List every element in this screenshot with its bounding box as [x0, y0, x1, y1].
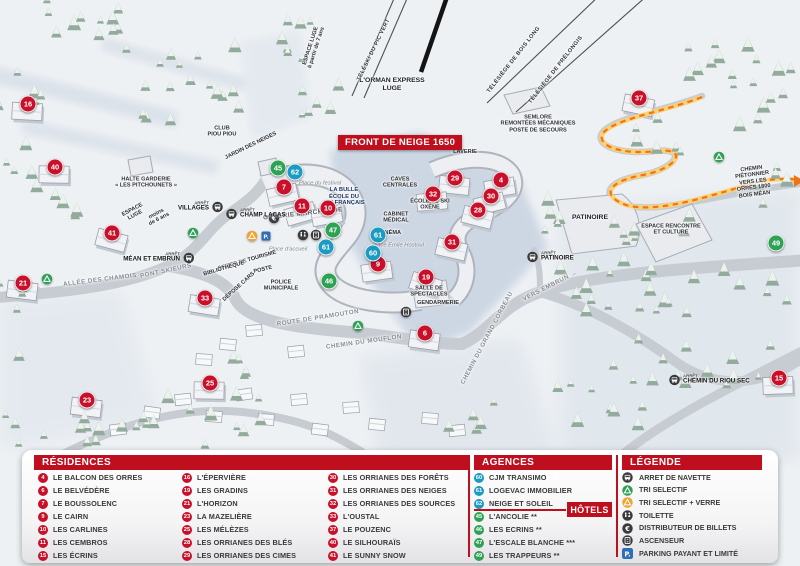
map-label: CHEMIN PIÉTONNIER VERS LES ORRES 1800 BO…: [728, 163, 779, 201]
map-marker-45: 45: [270, 160, 287, 177]
list-item: 33L'OUSTAL: [328, 510, 455, 523]
item-label: LES ORRIANES DES SOURCES: [343, 499, 455, 508]
item-label: LE SILHOURAÏS: [343, 538, 401, 547]
svg-text:P.: P.: [263, 234, 268, 240]
number-badge: 49: [474, 551, 484, 561]
number-badge: 19: [182, 486, 192, 496]
item-label: L'ESCALE BLANCHE ***: [489, 538, 575, 547]
item-label: LES MÉLÈZES: [197, 525, 249, 534]
bus-icon: [527, 251, 538, 262]
resort-map-page: ESPACE LUGE à partir de 7 ansTÉLÉSKI DU …: [0, 0, 800, 566]
legende-list: ARRET DE NAVETTETRI SELECTIFTRI SELECTIF…: [622, 471, 738, 560]
map-icon-toilet: [298, 230, 309, 241]
map-label: TÉLÉSIÈGE DE BOIS LONG: [486, 26, 542, 95]
item-label: L'ÉPERVIÈRE: [197, 473, 246, 482]
map-marker-7: 7: [276, 179, 293, 196]
legende-label: ASCENSEUR: [639, 537, 684, 544]
number-badge: 33: [328, 512, 338, 522]
list-item: 11LES CEMBROS: [38, 536, 142, 549]
number-badge: 23: [182, 512, 192, 522]
number-badge: 9: [38, 512, 48, 522]
item-label: LES ÉCRINS: [53, 551, 98, 560]
legende-label: DISTRIBUTEUR DE BILLETS: [639, 524, 736, 531]
number-badge: 6: [38, 486, 48, 496]
legende-item: TRI SELECTIF + VERRE: [622, 496, 738, 509]
recycle-green-icon: [622, 485, 633, 496]
map-marker-28: 28: [470, 202, 487, 219]
list-item: 16L'ÉPERVIÈRE: [182, 471, 296, 484]
map-label: ESPACE LUGE à partir de 7 ans: [301, 25, 326, 70]
map-label: SALLE DE SPECTACLES: [410, 286, 447, 299]
list-item: 10LES CARLINES: [38, 523, 142, 536]
number-badge: 45: [474, 512, 484, 522]
number-badge: 41: [328, 551, 338, 561]
map-marker-25: 25: [202, 375, 219, 392]
item-label: LES ORRIANES DES NEIGES: [343, 486, 447, 495]
map-marker-61: 61: [318, 239, 335, 256]
item-label: LE CAIRN: [53, 512, 88, 521]
number-badge: 7: [38, 499, 48, 509]
map-marker-29: 29: [447, 170, 464, 187]
list-item: 46LES ECRINS **: [474, 523, 575, 536]
map-label: PONT SKIEURS: [140, 262, 193, 280]
map-marker-61: 61: [370, 227, 387, 244]
item-label: NEIGE ET SOLEIL: [489, 499, 553, 508]
item-label: LES ORRIANES DES BLÉS: [197, 538, 292, 547]
list-item: 31LES ORRIANES DES NEIGES: [328, 484, 455, 497]
bus-stop-champ-lacas: ARRÊTCHAMP LACAS: [226, 208, 286, 219]
bus-icon: [212, 201, 223, 212]
item-label: LES ORRIANES DES CIMES: [197, 551, 296, 560]
bus-stop-m-an-et-embrun: ARRÊTMÉAN ET EMBRUN: [123, 252, 194, 263]
map-marker-23: 23: [79, 392, 96, 409]
legende-header: LÉGENDE: [622, 455, 762, 470]
map-icon-elevator: [401, 307, 412, 318]
number-badge: 29: [182, 551, 192, 561]
number-badge: 21: [182, 499, 192, 509]
item-label: LE BELVÉDÈRE: [53, 486, 110, 495]
map-marker-10: 10: [320, 200, 337, 217]
item-label: L'HORIZON: [197, 499, 238, 508]
list-item: 7LE BOUSSOLENC: [38, 497, 142, 510]
map-label: HALTE GARDERIE « LES PITCHOUNETS »: [115, 177, 177, 190]
list-item: 61LOGEVAC IMMOBILIER: [474, 484, 572, 497]
legende-label: ARRET DE NAVETTE: [639, 474, 711, 481]
map-label: CHEMIN DU GRAND CORBEAU: [459, 290, 514, 385]
map-label: TÉLÉSIÈGE DE PRÉLONGIS: [528, 35, 585, 105]
number-badge: 10: [38, 525, 48, 535]
map-label: ALLÉE DES CHAMOIS: [63, 272, 137, 288]
agences-header: AGENCES IMMOBILIÈRES: [474, 455, 612, 470]
legende-item: ASCENSEUR: [622, 534, 738, 547]
map-label: PATINOIRE: [572, 214, 608, 222]
list-item: 60CJM TRANSIMO: [474, 471, 572, 484]
item-label: LOGEVAC IMMOBILIER: [489, 486, 572, 495]
map-marker-41: 41: [104, 225, 121, 242]
item-label: LES ECRINS **: [489, 525, 542, 534]
map-marker-30: 30: [483, 188, 500, 205]
map-marker-40: 40: [47, 159, 64, 176]
number-badge: 15: [38, 551, 48, 561]
list-item: 21L'HORIZON: [182, 497, 296, 510]
list-item: 40LE SILHOURAÏS: [328, 536, 455, 549]
number-badge: 37: [328, 525, 338, 535]
map-marker-11: 11: [294, 198, 311, 215]
map-label: TÉLÉSKI DU PIC VERT: [356, 18, 392, 82]
map-label: POSTE: [253, 265, 273, 276]
bus-stop-patinoire: ARRÊTPATINOIRE: [527, 251, 574, 262]
item-label: LES CARLINES: [53, 525, 108, 534]
map-label: POLICE MUNICIPALE: [264, 280, 298, 293]
euro-icon: €: [622, 523, 633, 534]
map-label: BIBLIOTHÈQUE: [203, 260, 245, 278]
item-label: LES ORRIANES DES FORÊTS: [343, 473, 449, 482]
map-icon-parking: P.: [262, 232, 271, 241]
item-label: L'OUSTAL: [343, 512, 379, 521]
residences-column-3: 30LES ORRIANES DES FORÊTS31LES ORRIANES …: [328, 471, 455, 562]
map-icon-recycle-orange: [247, 231, 258, 242]
legende-label: TRI SELECTIF + VERRE: [639, 499, 720, 506]
residences-column-1: 4LE BALCON DES ORRES6LE BELVÉDÈRE7LE BOU…: [38, 471, 142, 562]
number-badge: 62: [474, 499, 484, 509]
map-icon-recycle-green: [188, 228, 199, 239]
list-item: 15LES ÉCRINS: [38, 549, 142, 562]
number-badge: 61: [474, 486, 484, 496]
list-item: 23LA MAZELIÈRE: [182, 510, 296, 523]
legende-label: TOILETTE: [639, 512, 674, 519]
number-badge: 25: [182, 525, 192, 535]
item-label: LES TRAPPEURS **: [489, 551, 560, 560]
parking-icon: P.: [622, 548, 633, 559]
legende-item: P.PARKING PAYANT ET LIMITÉ: [622, 547, 738, 560]
divider: [468, 455, 470, 557]
item-label: LE SUNNY SNOW: [343, 551, 406, 560]
number-badge: 47: [474, 538, 484, 548]
map-label: ROUTE DE PRAMOUTON: [276, 308, 359, 328]
map-icon-recycle-green: [714, 152, 725, 163]
legende-label: PARKING PAYANT ET LIMITÉ: [639, 550, 738, 557]
toilet-icon: [622, 510, 633, 521]
number-badge: 30: [328, 473, 338, 483]
number-badge: 46: [474, 525, 484, 535]
list-item: 47L'ESCALE BLANCHE ***: [474, 536, 575, 549]
map-marker-62: 62: [287, 164, 304, 181]
bus-icon: [226, 208, 237, 219]
map-marker-31: 31: [444, 234, 461, 251]
residences-header: RÉSIDENCES: [34, 455, 468, 470]
list-item: 4LE BALCON DES ORRES: [38, 471, 142, 484]
map-marker-33: 33: [197, 290, 214, 307]
map-marker-15: 15: [771, 370, 788, 387]
item-label: L'ANCOLIE **: [489, 512, 537, 521]
map-label: moins de 6 ans: [145, 206, 171, 228]
svg-text:P.: P.: [624, 550, 630, 558]
map-label: CAVES CENTRALES: [383, 177, 417, 190]
list-item: 6LE BELVÉDÈRE: [38, 484, 142, 497]
map-marker-60: 60: [365, 245, 382, 262]
item-label: LE BALCON DES ORRES: [53, 473, 142, 482]
list-item: 25LES MÉLÈZES: [182, 523, 296, 536]
list-item: 37LE POUZENC: [328, 523, 455, 536]
map-marker-21: 21: [15, 275, 32, 292]
legende-item: TRI SELECTIF: [622, 484, 738, 497]
map-marker-32: 32: [425, 186, 442, 203]
list-item: 45L'ANCOLIE **: [474, 510, 575, 523]
bus-icon: [622, 472, 633, 483]
map-label: DÉPOSE CARS: [222, 271, 257, 303]
front-de-neige-banner: FRONT DE NEIGE 1650: [338, 135, 462, 150]
item-label: LES GRADINS: [197, 486, 248, 495]
map-marker-37: 37: [631, 90, 648, 107]
hotels-list: 45L'ANCOLIE **46LES ECRINS **47L'ESCALE …: [474, 510, 575, 562]
number-badge: 40: [328, 538, 338, 548]
map-label: GENDARMERIE: [417, 300, 459, 306]
map-label: VERS EMBRUN →: [522, 269, 579, 303]
map-marker-46: 46: [321, 273, 338, 290]
list-item: 32LES ORRIANES DES SOURCES: [328, 497, 455, 510]
recycle-orange-icon: [622, 497, 633, 508]
legende-item: €DISTRIBUTEUR DE BILLETS: [622, 522, 738, 535]
map-icon-elevator: [311, 230, 322, 241]
list-item: 30LES ORRIANES DES FORÊTS: [328, 471, 455, 484]
list-item: 19LES GRADINS: [182, 484, 296, 497]
map-marker-4: 4: [493, 172, 510, 189]
item-label: LE BOUSSOLENC: [53, 499, 117, 508]
map-marker-49: 49: [768, 235, 785, 252]
legend-panel: RÉSIDENCES 4LE BALCON DES ORRES6LE BELVÉ…: [22, 450, 778, 563]
map-label: ESPACE RENCONTRE ET CULTURE: [641, 224, 701, 237]
number-badge: 31: [328, 486, 338, 496]
map-marker-16: 16: [20, 96, 37, 113]
map-label: ESPACE LUGE: [121, 202, 147, 224]
agences-list: 60CJM TRANSIMO61LOGEVAC IMMOBILIER62NEIG…: [474, 471, 572, 510]
elevator-icon: [622, 535, 633, 546]
residences-column-2: 16L'ÉPERVIÈRE19LES GRADINS21L'HORIZON23L…: [182, 471, 296, 562]
svg-text:€: €: [624, 524, 630, 532]
bus-stop-villages: ARRÊTVILLAGES: [178, 201, 223, 212]
list-item: 9LE CAIRN: [38, 510, 142, 523]
map-icon-recycle-green: [42, 274, 53, 285]
list-item: 49LES TRAPPEURS **: [474, 549, 575, 562]
legende-item: TOILETTE: [622, 509, 738, 522]
legende-label: TRI SELECTIF: [639, 486, 687, 493]
item-label: LES CEMBROS: [53, 538, 108, 547]
map-marker-19: 19: [418, 269, 435, 286]
number-badge: 11: [38, 538, 48, 548]
item-label: LE POUZENC: [343, 525, 391, 534]
map-icon-recycle-green: [353, 321, 364, 332]
bus-icon: [669, 374, 680, 385]
map-marker-6: 6: [417, 325, 434, 342]
divider: [616, 455, 618, 557]
number-badge: 32: [328, 499, 338, 509]
legende-item: ARRET DE NAVETTE: [622, 471, 738, 484]
number-badge: 60: [474, 473, 484, 483]
item-label: CJM TRANSIMO: [489, 473, 547, 482]
item-label: LA MAZELIÈRE: [197, 512, 252, 521]
map-label: SEMLORE REMONTÉES MÉCANIQUES POSTE DE SE…: [501, 114, 576, 133]
bus-icon: [183, 252, 194, 263]
number-badge: 4: [38, 473, 48, 483]
map-label: CABINET MÉDICAL: [383, 212, 408, 225]
map-marker-47: 47: [325, 222, 342, 239]
map-label: CLUB PIOU PIOU: [208, 126, 237, 139]
number-badge: 28: [182, 538, 192, 548]
map-label: L'ORMAN EXPRESS LUGE: [359, 77, 424, 93]
map-label: CHEMIN DU MOUFLON: [326, 333, 403, 351]
list-item: 29LES ORRIANES DES CIMES: [182, 549, 296, 562]
list-item: 41LE SUNNY SNOW: [328, 549, 455, 562]
bus-stop-chemin-du-riou-sec: ARRÊTCHEMIN DU RIOU SEC: [669, 374, 750, 385]
number-badge: 16: [182, 473, 192, 483]
list-item: 28LES ORRIANES DES BLÉS: [182, 536, 296, 549]
